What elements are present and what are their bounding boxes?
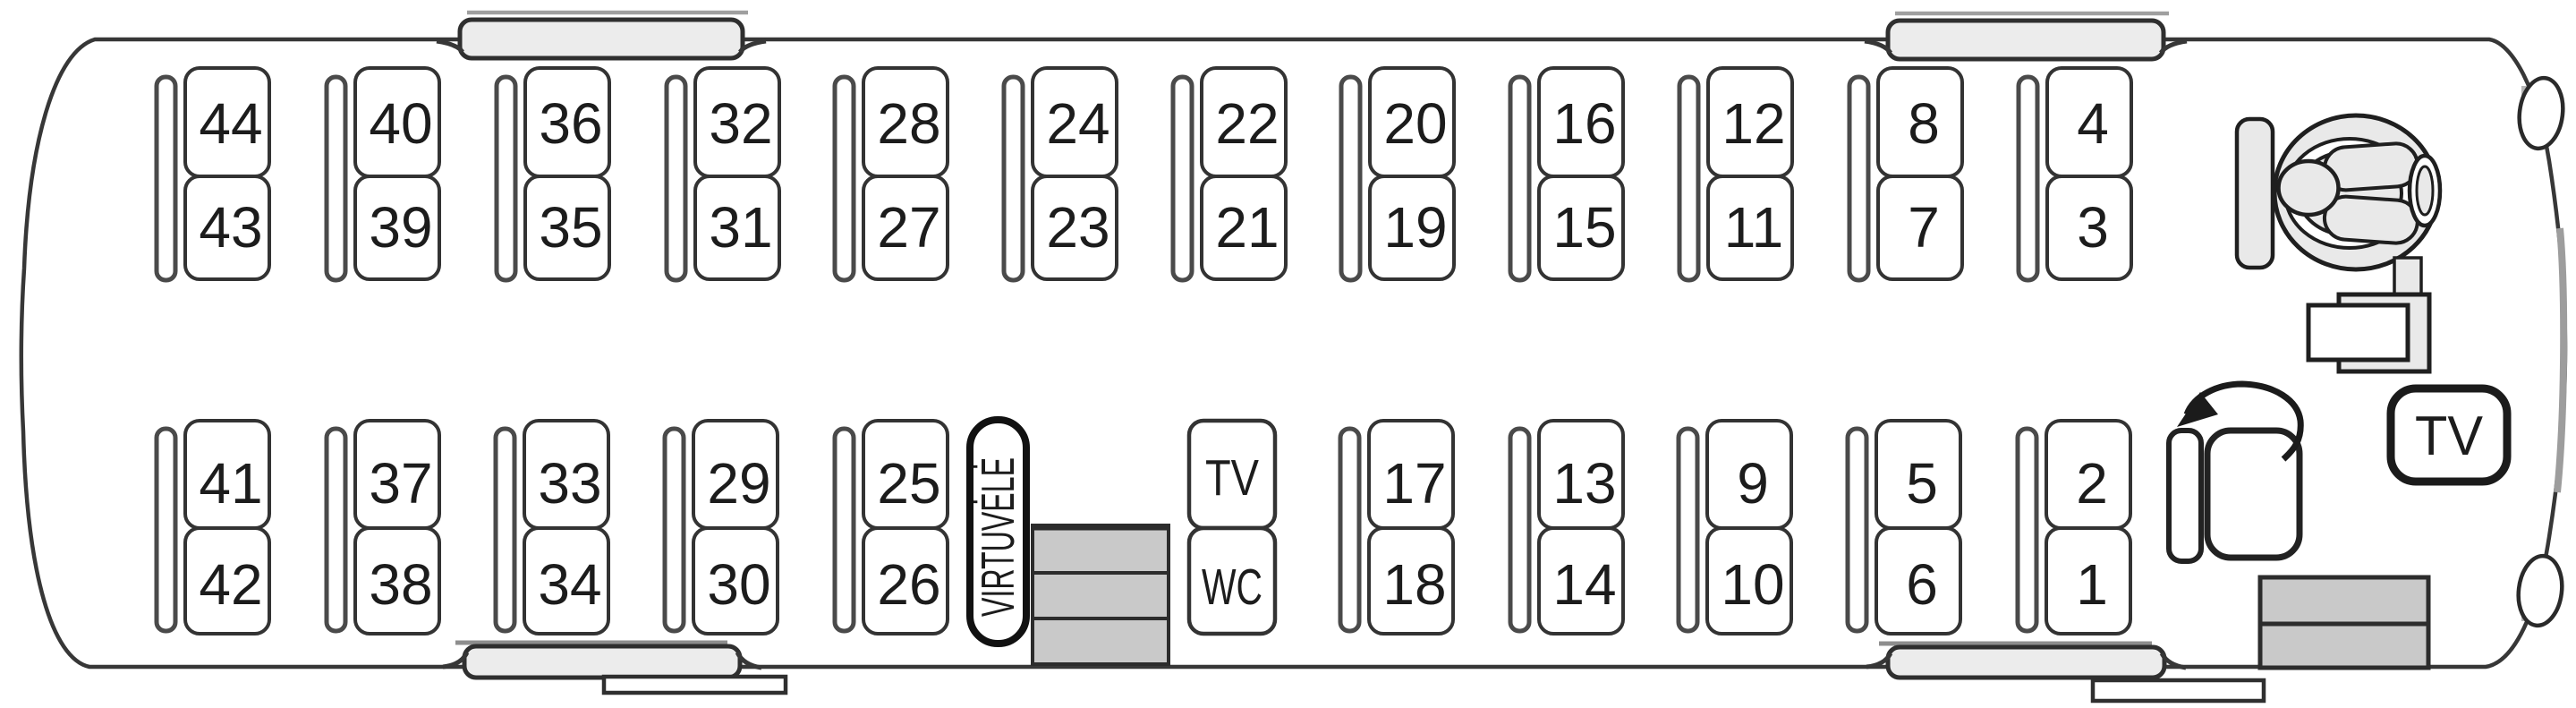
- svg-text:6: 6: [1906, 552, 1938, 617]
- svg-text:1: 1: [2076, 552, 2108, 617]
- svg-text:44: 44: [199, 91, 262, 156]
- svg-text:29: 29: [707, 451, 770, 516]
- svg-text:28: 28: [877, 91, 940, 156]
- svg-text:23: 23: [1046, 195, 1109, 260]
- svg-text:10: 10: [1721, 552, 1784, 617]
- svg-text:17: 17: [1382, 451, 1446, 516]
- svg-text:40: 40: [369, 91, 432, 156]
- svg-text:42: 42: [199, 552, 262, 617]
- svg-text:35: 35: [539, 195, 602, 260]
- svg-text:20: 20: [1383, 91, 1447, 156]
- svg-text:14: 14: [1552, 552, 1616, 617]
- svg-text:4: 4: [2077, 91, 2109, 156]
- svg-text:33: 33: [538, 451, 601, 516]
- svg-text:WC: WC: [1202, 559, 1262, 616]
- svg-text:41: 41: [199, 451, 262, 516]
- svg-text:12: 12: [1722, 91, 1785, 156]
- svg-text:31: 31: [709, 195, 772, 260]
- svg-text:27: 27: [877, 195, 940, 260]
- svg-text:18: 18: [1382, 552, 1446, 617]
- svg-text:36: 36: [539, 91, 602, 156]
- svg-text:34: 34: [538, 552, 601, 617]
- svg-text:2: 2: [2076, 451, 2108, 516]
- svg-text:5: 5: [1906, 451, 1938, 516]
- svg-text:VIRTUVĖLĖ: VIRTUVĖLĖ: [973, 457, 1024, 617]
- svg-text:16: 16: [1552, 91, 1616, 156]
- svg-text:26: 26: [877, 552, 940, 617]
- svg-text:30: 30: [707, 552, 770, 617]
- svg-text:8: 8: [1908, 91, 1940, 156]
- svg-text:9: 9: [1737, 451, 1769, 516]
- svg-text:38: 38: [369, 552, 432, 617]
- svg-text:TV: TV: [2415, 405, 2484, 467]
- svg-text:21: 21: [1215, 195, 1279, 260]
- svg-text:25: 25: [877, 451, 940, 516]
- svg-text:37: 37: [369, 451, 432, 516]
- svg-text:TV: TV: [1205, 449, 1259, 507]
- svg-text:13: 13: [1552, 451, 1616, 516]
- svg-text:15: 15: [1552, 195, 1616, 260]
- svg-text:24: 24: [1046, 91, 1109, 156]
- svg-text:32: 32: [709, 91, 772, 156]
- svg-text:19: 19: [1383, 195, 1447, 260]
- svg-text:39: 39: [369, 195, 432, 260]
- svg-text:3: 3: [2077, 195, 2109, 260]
- svg-text:22: 22: [1215, 91, 1279, 156]
- svg-text:11: 11: [1724, 195, 1783, 260]
- svg-text:7: 7: [1908, 195, 1940, 260]
- svg-text:43: 43: [199, 195, 262, 260]
